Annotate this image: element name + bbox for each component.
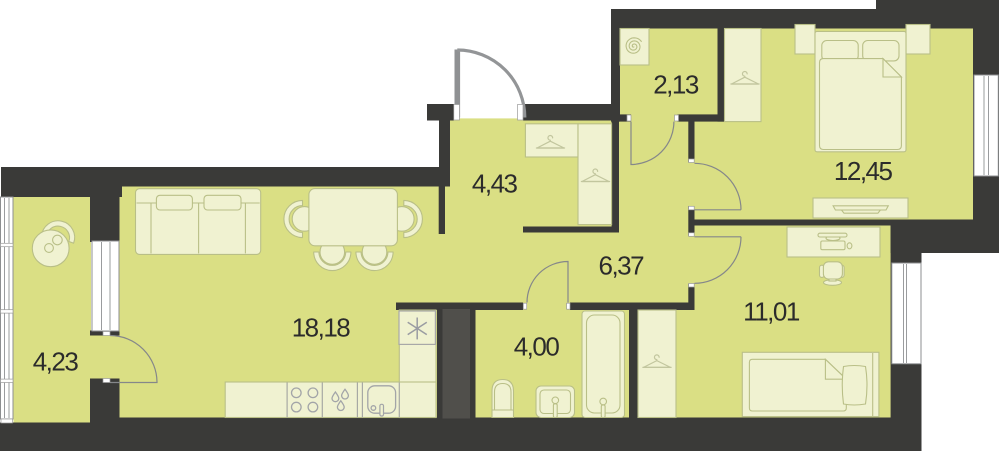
svg-text:11,01: 11,01 xyxy=(743,297,800,327)
svg-text:6,37: 6,37 xyxy=(598,251,644,281)
svg-text:4,00: 4,00 xyxy=(514,332,560,362)
svg-text:12,45: 12,45 xyxy=(834,156,893,186)
svg-text:4,23: 4,23 xyxy=(33,347,79,377)
svg-text:2,13: 2,13 xyxy=(653,70,699,100)
svg-text:18,18: 18,18 xyxy=(292,313,351,343)
svg-text:4,43: 4,43 xyxy=(472,169,518,199)
